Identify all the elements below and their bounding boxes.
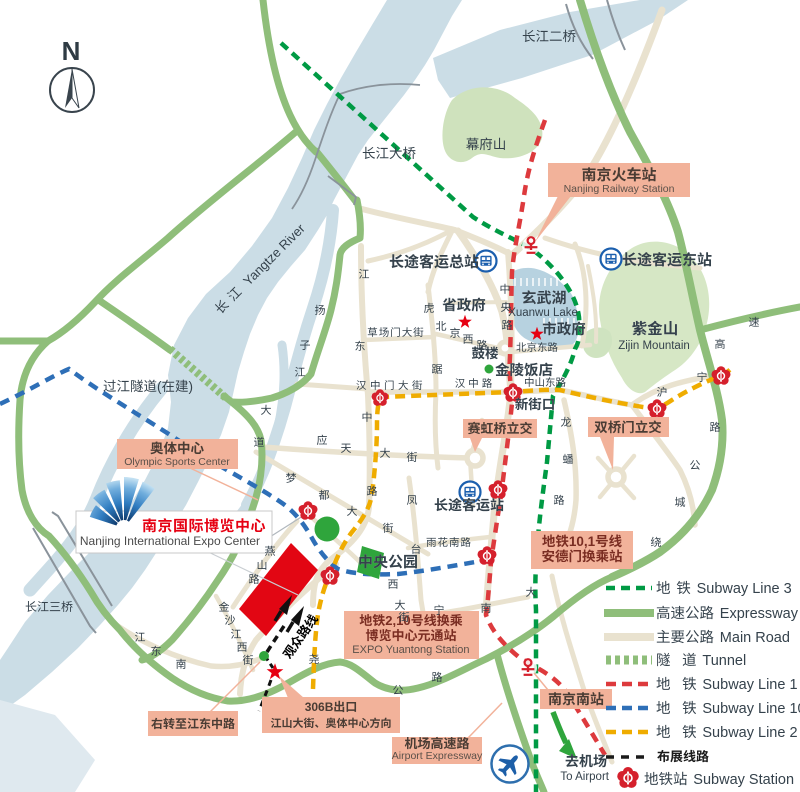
svg-text:Olympic Sports Center: Olympic Sports Center [124, 456, 230, 468]
svg-text:Subway Station: Subway Station [693, 772, 794, 788]
svg-text:Xuanwu Lake: Xuanwu Lake [508, 307, 578, 319]
svg-text:Subway Line 3: Subway Line 3 [697, 581, 792, 597]
svg-text:N: N [62, 36, 81, 66]
svg-text:To Airport: To Airport [560, 771, 609, 783]
svg-text:2,10: 2,10 [385, 613, 410, 628]
svg-text:Subway Line 10: Subway Line 10 [702, 701, 800, 717]
svg-text:Nanjing International Expo Cen: Nanjing International Expo Center [80, 534, 260, 548]
svg-text:Tunnel: Tunnel [702, 653, 746, 669]
svg-text:EXPO Yuantong Station: EXPO Yuantong Station [352, 644, 469, 656]
svg-text:Nanjing Railway Station: Nanjing Railway Station [564, 183, 675, 195]
svg-text:Airport Expressway: Airport Expressway [392, 750, 483, 762]
svg-text:Subway Line 2: Subway Line 2 [702, 725, 797, 741]
svg-text:): ) [189, 379, 194, 394]
svg-text:Main Road: Main Road [720, 630, 790, 646]
svg-text:10,1: 10,1 [569, 534, 596, 549]
svg-text:Subway Line 1: Subway Line 1 [702, 677, 797, 693]
svg-text:Zijin Mountain: Zijin Mountain [618, 340, 690, 352]
svg-text:Expressway: Expressway [720, 606, 799, 622]
svg-text:(: ( [157, 379, 162, 394]
svg-text:306B: 306B [305, 700, 334, 714]
